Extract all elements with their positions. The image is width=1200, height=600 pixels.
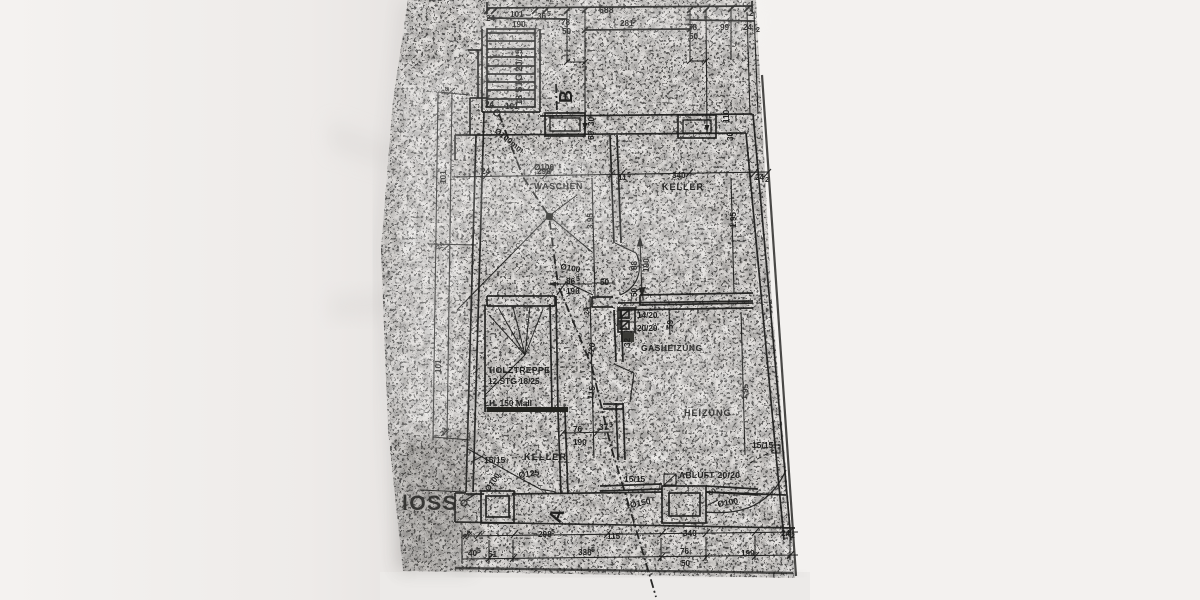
svg-text:76: 76 bbox=[680, 547, 690, 556]
svg-text:86: 86 bbox=[566, 277, 576, 286]
svg-text:24: 24 bbox=[584, 307, 591, 315]
svg-text:30: 30 bbox=[726, 131, 735, 141]
svg-text:50: 50 bbox=[600, 278, 610, 287]
svg-text:11: 11 bbox=[618, 173, 627, 182]
svg-text:15/15: 15/15 bbox=[752, 440, 774, 450]
svg-text:59: 59 bbox=[666, 319, 675, 329]
svg-text:KELLER: KELLER bbox=[524, 452, 567, 462]
svg-text:50: 50 bbox=[587, 130, 596, 140]
svg-text:340: 340 bbox=[672, 171, 686, 180]
svg-text:115: 115 bbox=[607, 532, 621, 541]
svg-text:20/20: 20/20 bbox=[637, 324, 658, 333]
svg-text:5: 5 bbox=[627, 172, 631, 179]
svg-text:15/15: 15/15 bbox=[484, 455, 506, 465]
svg-text:15/15: 15/15 bbox=[624, 474, 646, 484]
svg-text:LH. 150 MaII: LH. 150 MaII bbox=[484, 398, 532, 408]
svg-text:110: 110 bbox=[722, 109, 731, 123]
svg-text:199: 199 bbox=[741, 549, 755, 558]
svg-text:37: 37 bbox=[599, 423, 609, 432]
svg-text:190: 190 bbox=[566, 287, 580, 296]
svg-text:5: 5 bbox=[576, 276, 580, 283]
svg-text:51: 51 bbox=[488, 550, 498, 559]
svg-text:298: 298 bbox=[538, 530, 552, 539]
svg-text:32: 32 bbox=[623, 337, 632, 347]
svg-text:50: 50 bbox=[630, 287, 639, 297]
svg-text:ABLUFT 20/20: ABLUFT 20/20 bbox=[679, 470, 740, 480]
svg-text:2: 2 bbox=[765, 177, 769, 184]
svg-text:30: 30 bbox=[587, 116, 596, 126]
svg-text:76: 76 bbox=[573, 425, 583, 434]
svg-text:12 STG 18/25: 12 STG 18/25 bbox=[488, 376, 540, 386]
svg-text:KELLER: KELLER bbox=[662, 182, 704, 192]
svg-text:1.95: 1.95 bbox=[729, 212, 738, 228]
svg-text:5: 5 bbox=[591, 547, 595, 554]
svg-text:50: 50 bbox=[681, 559, 691, 568]
svg-text:B: B bbox=[556, 90, 576, 103]
svg-text:340: 340 bbox=[683, 529, 697, 538]
svg-text:24: 24 bbox=[755, 173, 765, 182]
svg-text:HOLZTREPPE: HOLZTREPPE bbox=[489, 365, 550, 375]
svg-text:2: 2 bbox=[791, 533, 795, 540]
svg-text:14/20: 14/20 bbox=[637, 311, 658, 320]
svg-text:5: 5 bbox=[551, 529, 555, 536]
svg-text:24: 24 bbox=[781, 529, 791, 538]
svg-text:190: 190 bbox=[573, 438, 587, 447]
svg-text:338: 338 bbox=[578, 548, 592, 557]
svg-text:5: 5 bbox=[609, 422, 613, 429]
svg-text:5: 5 bbox=[477, 548, 481, 555]
